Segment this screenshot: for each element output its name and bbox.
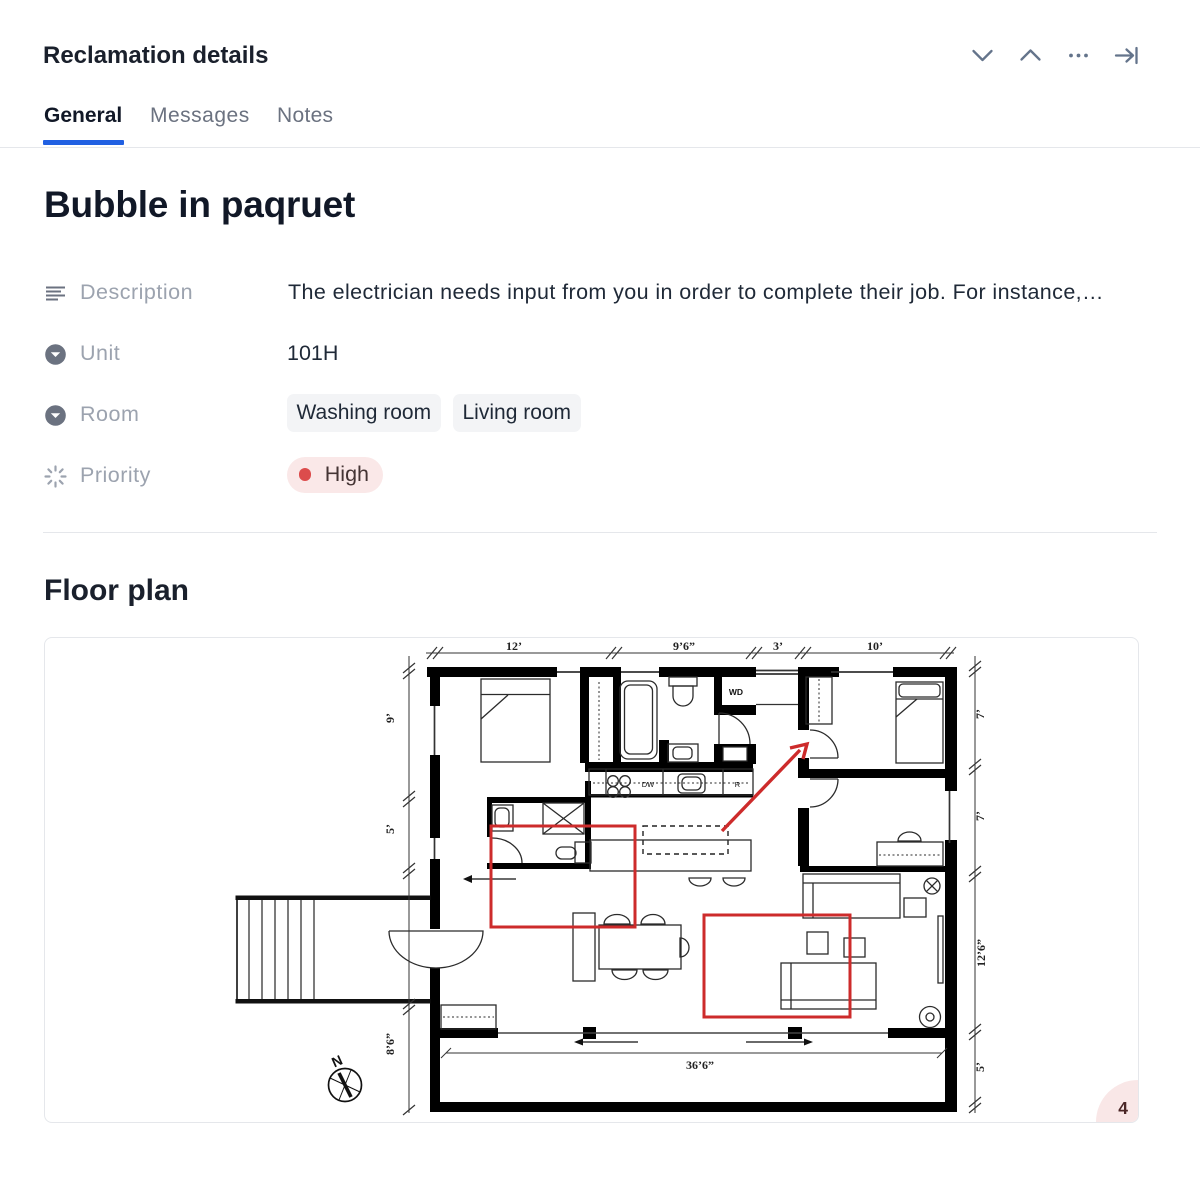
svg-text:36’6”: 36’6” (686, 1058, 714, 1072)
svg-text:9’6”: 9’6” (673, 639, 695, 653)
svg-text:7’: 7’ (973, 709, 987, 719)
svg-text:12’6”: 12’6” (974, 939, 988, 967)
svg-text:N: N (329, 1052, 345, 1071)
svg-text:12’: 12’ (506, 639, 522, 653)
svg-text:DW: DW (642, 780, 655, 789)
svg-text:7’: 7’ (973, 811, 987, 821)
svg-text:5’: 5’ (383, 824, 397, 834)
svg-text:WD: WD (729, 687, 743, 697)
svg-text:3’: 3’ (773, 639, 783, 653)
svg-text:10’: 10’ (867, 639, 883, 653)
svg-text:R: R (735, 780, 741, 789)
svg-text:5’: 5’ (973, 1062, 987, 1072)
svg-text:8’6”: 8’6” (383, 1033, 397, 1055)
svg-text:9’: 9’ (383, 713, 397, 723)
